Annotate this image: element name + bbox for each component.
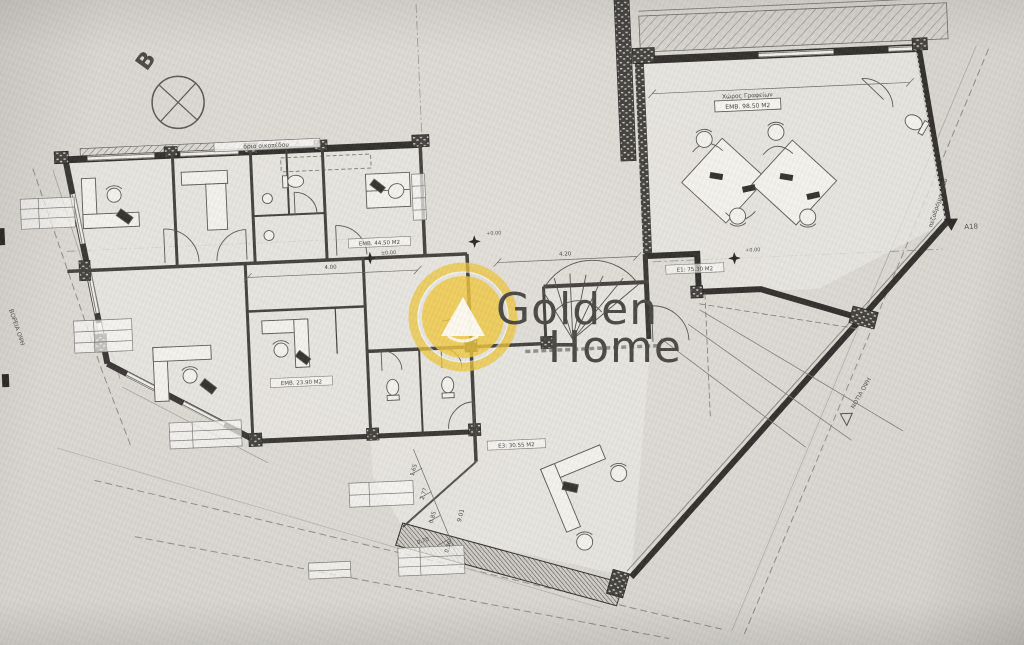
level-c: ±0.00 (381, 250, 397, 257)
floor-plan-canvas: B A18 ΝΟΤΙΑ ΟΨΗ ΒΟΡΕΙΑ ΟΨΗ πεζοδρόμιο οδ… (0, 0, 1024, 645)
north-label: B (131, 47, 161, 75)
party-wall (614, 0, 636, 161)
level-b: +0.00 (745, 247, 761, 254)
west-side-label: ΒΟΡΕΙΑ ΟΨΗ (7, 308, 26, 346)
level-a: +0.00 (486, 230, 502, 237)
south-elevation-marker: ΝΟΤΙΑ ΟΨΗ (839, 376, 875, 425)
edge-marks (0, 228, 11, 387)
north-compass-icon (151, 75, 205, 129)
svg-text:A18: A18 (964, 223, 978, 232)
svg-text:4.20: 4.20 (559, 251, 572, 258)
watermark-word-2: Home (548, 322, 682, 373)
svg-text:ΝΟΤΙΑ ΟΨΗ: ΝΟΤΙΑ ΟΨΗ (850, 377, 873, 411)
a18-marker: A18 (944, 218, 978, 232)
neighbor-plot-hatch (639, 0, 948, 52)
svg-text:4.00: 4.00 (324, 265, 337, 272)
floor-plan-photo: B A18 ΝΟΤΙΑ ΟΨΗ ΒΟΡΕΙΑ ΟΨΗ πεζοδρόμιο οδ… (0, 0, 1024, 645)
